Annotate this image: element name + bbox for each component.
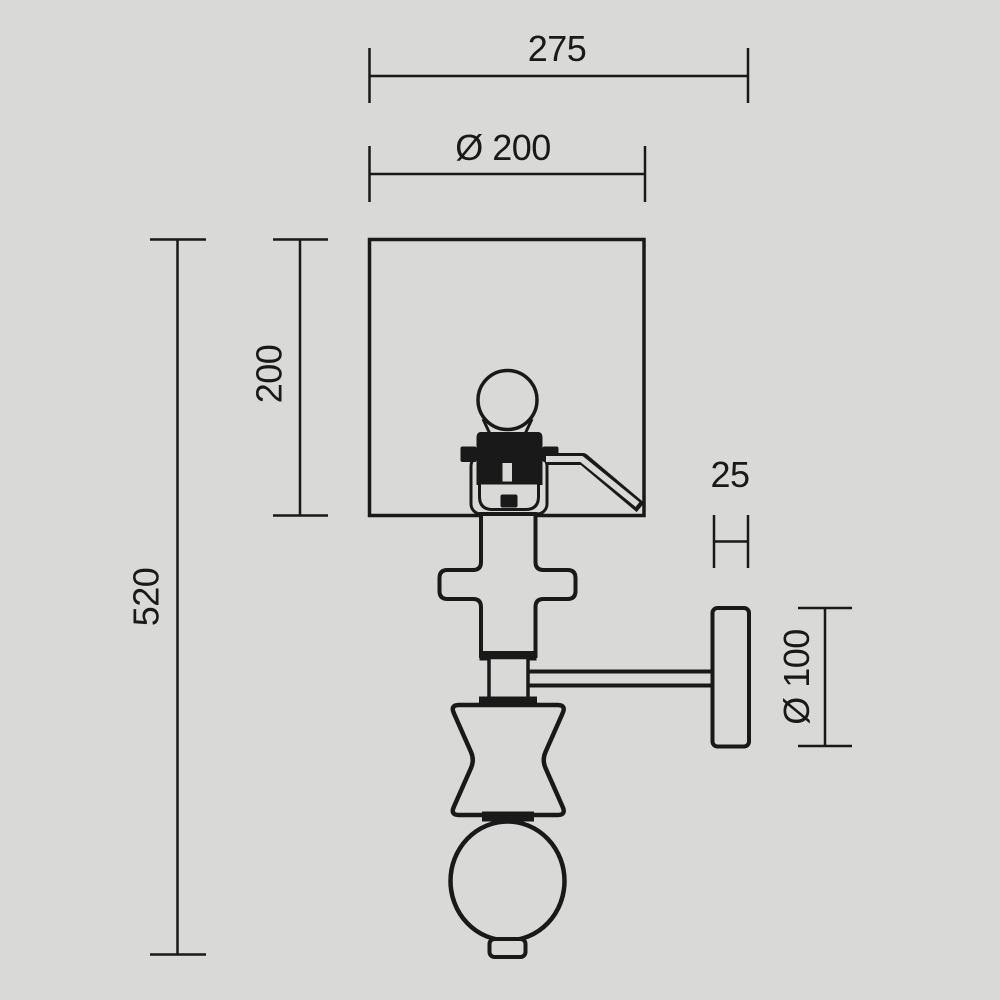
bulb-outline [478,371,537,430]
dim-label-plate-diameter: Ø 100 [776,629,817,725]
stem-cross-element [440,514,576,656]
dim-plate-diameter: Ø 100 [776,608,852,746]
stem-bowtie-element [453,705,564,815]
stem-sphere-element [451,822,565,941]
technical-drawing-canvas: 275 Ø 200 520 200 25 Ø 100 [0,0,1000,1000]
dim-shade-diameter: Ø 200 [370,127,646,202]
dim-total-height: 520 [126,240,207,955]
stem-narrow-section [489,658,528,700]
bottom-cap [490,939,526,957]
socket-flange-left [461,447,477,463]
dim-label-total-width: 275 [528,28,587,69]
dim-plate-thickness: 25 [710,454,749,568]
dim-label-plate-thickness: 25 [710,454,749,495]
dim-shade-height: 200 [249,240,329,516]
dim-label-shade-height: 200 [249,345,290,404]
dim-total-width: 275 [370,28,749,103]
socket-cup-tab [501,495,518,508]
dim-label-total-height: 520 [126,568,167,627]
wall-plate [713,608,750,747]
lamp-drawing [370,240,750,958]
dim-label-shade-diameter: Ø 200 [455,127,551,168]
